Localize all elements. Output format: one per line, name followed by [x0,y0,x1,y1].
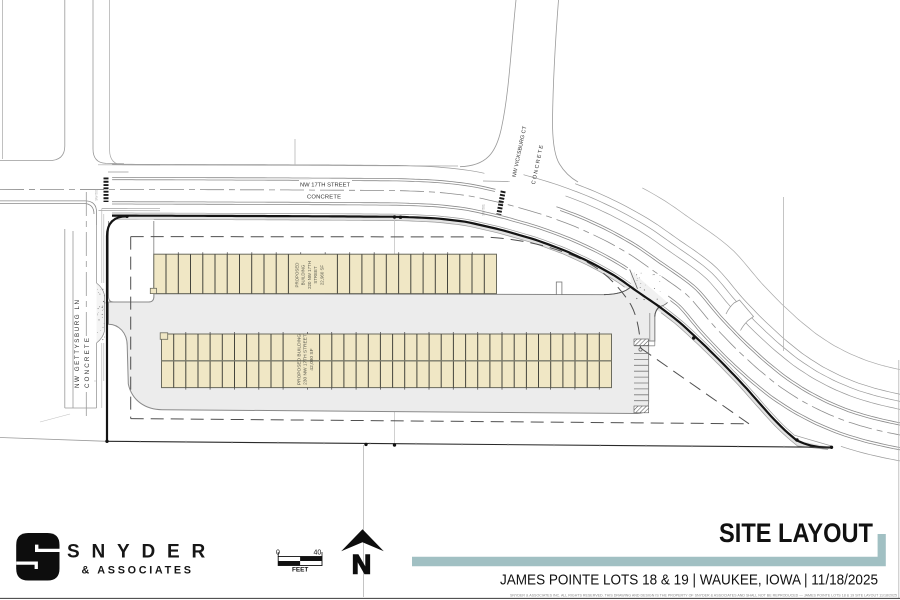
svg-text:SNYDER: SNYDER [67,542,217,563]
svg-text:42,080 SF: 42,080 SF [309,348,315,370]
svg-text:SW-501: SW-501 [482,204,486,216]
svg-text:BUILDING: BUILDING [301,264,306,285]
svg-text:40: 40 [314,550,322,557]
svg-text:22,960 SF: 22,960 SF [319,265,324,286]
svg-text:230 NW 17TH STREET: 230 NW 17TH STREET [303,334,309,385]
svg-text:PROPOSED BUILDING: PROPOSED BUILDING [297,334,303,385]
svg-text:& ASSOCIATES: & ASSOCIATES [82,565,194,577]
svg-text:CONCRETE: CONCRETE [307,195,341,201]
svg-text:N: N [352,550,372,580]
svg-text:NW 17TH STREET: NW 17TH STREET [300,183,350,189]
svg-text:FEET: FEET [292,567,308,574]
svg-text:220 NW 17TH: 220 NW 17TH [307,261,312,289]
svg-text:SW-500: SW-500 [95,189,99,201]
svg-text:STREET: STREET [313,266,318,284]
svg-text:SITE LAYOUT: SITE LAYOUT [719,518,873,548]
svg-text:SNYDER & ASSOCIATES INC. ALL R: SNYDER & ASSOCIATES INC. ALL RIGHTS RESE… [510,592,898,597]
svg-text:PROPOSED: PROPOSED [295,263,300,288]
svg-text:JAMES POINTE LOTS 18 & 19 | WA: JAMES POINTE LOTS 18 & 19 | WAUKEE, IOWA… [500,572,878,589]
